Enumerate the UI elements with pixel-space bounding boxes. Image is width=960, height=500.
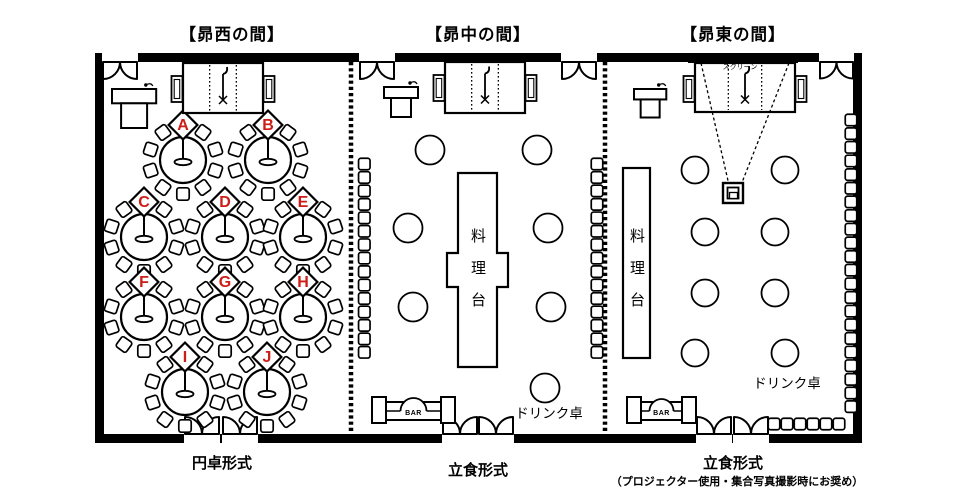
chair-icon <box>591 185 603 197</box>
chair-icon <box>210 395 226 411</box>
chair-icon <box>115 336 132 353</box>
chair-icon <box>219 345 231 357</box>
format-label-east: 立食形式 <box>653 452 813 473</box>
chair-icon <box>145 374 161 390</box>
table-letter-H: H <box>297 274 309 291</box>
chair-icon <box>185 240 201 256</box>
chair-icon <box>359 333 371 345</box>
chair-icon <box>591 239 603 251</box>
door-icon <box>561 51 597 79</box>
chair-icon <box>359 172 371 184</box>
chair-icon <box>359 252 371 264</box>
room-title-center: 【昴中の間】 <box>378 21 578 45</box>
chair-icon <box>156 411 173 428</box>
round-table-G: G <box>185 268 265 358</box>
door-icon <box>696 417 732 445</box>
chair-icon <box>194 179 211 196</box>
table-letter-B: B <box>262 117 274 134</box>
table-letter-C: C <box>138 194 150 211</box>
chair-icon <box>239 179 256 196</box>
chair-icon <box>845 360 857 372</box>
chair-icon <box>155 256 172 273</box>
door-icon <box>359 51 395 79</box>
chair-icon <box>250 219 266 235</box>
chair-icon <box>169 219 185 235</box>
chair-icon <box>104 219 120 235</box>
podium-icon <box>112 83 156 128</box>
chair-icon <box>210 374 226 390</box>
head-table <box>172 63 275 113</box>
chair-icon <box>359 199 371 211</box>
podium-icon <box>634 83 666 117</box>
chair-icon <box>591 199 603 211</box>
chair-icon <box>845 333 857 345</box>
room-title-west: 【昴西の間】 <box>132 21 332 45</box>
chair-icon <box>292 395 308 411</box>
chair-icon <box>591 226 603 238</box>
chair-icon <box>263 219 279 235</box>
chair-icon <box>591 172 603 184</box>
room-title-east: 【昴東の間】 <box>633 21 833 45</box>
wall-chair-row <box>591 158 603 358</box>
door-icon <box>819 51 854 79</box>
chair-icon <box>278 411 295 428</box>
chair-icon <box>262 188 274 200</box>
format-label-west: 円卓形式 <box>142 452 302 473</box>
chair-icon <box>768 418 780 430</box>
standing-table-icon <box>762 219 789 246</box>
standing-table-icon <box>523 136 552 165</box>
chair-icon <box>169 240 185 256</box>
chair-icon <box>328 240 344 256</box>
chair-icon <box>591 252 603 264</box>
chair-icon <box>359 158 371 170</box>
table-letter-J: J <box>263 349 272 366</box>
chair-icon <box>328 299 344 315</box>
chair-icon <box>845 210 857 222</box>
bar-label-east: BAR <box>647 410 676 417</box>
chair-icon <box>185 299 201 315</box>
chair-icon <box>591 306 603 318</box>
chair-icon <box>794 418 806 430</box>
standing-table-icon <box>772 157 799 184</box>
chair-icon <box>177 188 189 200</box>
chair-icon <box>228 163 244 179</box>
chair-icon <box>261 420 273 432</box>
chair-icon <box>169 320 185 336</box>
chair-icon <box>845 305 857 317</box>
round-table-B: B <box>228 111 308 201</box>
round-table-D: D <box>185 188 265 278</box>
wall-chair-row <box>359 158 371 358</box>
standing-table-icon <box>399 293 428 322</box>
chair-icon <box>250 299 266 315</box>
chair-icon <box>328 320 344 336</box>
chair-icon <box>845 196 857 208</box>
chair-icon <box>145 395 161 411</box>
chair-icon <box>359 293 371 305</box>
chair-icon <box>143 163 159 179</box>
chair-icon <box>845 292 857 304</box>
chair-icon <box>185 219 201 235</box>
chair-icon <box>845 264 857 276</box>
chair-icon <box>314 336 331 353</box>
chair-icon <box>274 336 291 353</box>
chair-icon <box>845 142 857 154</box>
standing-table-icon <box>416 136 445 165</box>
chair-icon <box>228 142 244 158</box>
round-table-E: E <box>263 188 343 278</box>
round-table-C: C <box>104 188 184 278</box>
chair-icon <box>154 179 171 196</box>
chair-icon <box>292 374 308 390</box>
chair-icon <box>169 299 185 315</box>
chair-icon <box>179 420 191 432</box>
chair-icon <box>833 418 845 430</box>
round-table-F: F <box>104 268 184 358</box>
chair-icon <box>208 163 224 179</box>
standing-table-icon <box>682 157 709 184</box>
wall-chair-row <box>768 418 845 430</box>
chair-icon <box>138 345 150 357</box>
chair-icon <box>274 256 291 273</box>
chair-icon <box>263 299 279 315</box>
chair-icon <box>293 163 309 179</box>
food-station-label-center: 料理台 <box>470 228 485 324</box>
chair-icon <box>155 336 172 353</box>
chair-icon <box>115 256 132 273</box>
chair-icon <box>591 266 603 278</box>
drink-table-icon <box>682 340 709 367</box>
round-table-A: A <box>143 111 223 201</box>
chair-icon <box>807 418 819 430</box>
food-station-label-east: 料理台 <box>629 228 644 324</box>
drink-table-label-center: ドリンク卓 <box>503 402 595 422</box>
bar-label-center: BAR <box>399 410 428 417</box>
chair-icon <box>359 266 371 278</box>
standing-table-icon <box>534 214 563 243</box>
chair-icon <box>845 387 857 399</box>
chair-icon <box>293 142 309 158</box>
chair-icon <box>591 293 603 305</box>
door-icon <box>733 417 769 445</box>
chair-icon <box>591 212 603 224</box>
chair-icon <box>845 374 857 386</box>
podium-icon <box>384 81 418 117</box>
chair-icon <box>196 336 213 353</box>
chair-icon <box>314 256 331 273</box>
drink-table-icon <box>531 374 560 403</box>
table-letter-G: G <box>219 274 231 291</box>
screen-label: スクリーン <box>712 62 768 72</box>
chair-icon <box>250 240 266 256</box>
chair-icon <box>359 212 371 224</box>
chair-icon <box>250 320 266 336</box>
chair-icon <box>328 219 344 235</box>
chair-icon <box>845 169 857 181</box>
table-letter-I: I <box>183 349 187 366</box>
chair-icon <box>227 374 243 390</box>
chair-icon <box>845 401 857 413</box>
chair-icon <box>359 306 371 318</box>
chair-icon <box>845 319 857 331</box>
chair-icon <box>820 418 832 430</box>
standing-table-icon <box>692 280 719 307</box>
chair-icon <box>359 347 371 359</box>
head-table <box>434 62 537 113</box>
chair-icon <box>208 142 224 158</box>
chair-icon <box>263 320 279 336</box>
chair-icon <box>845 251 857 263</box>
drink-table-label-east: ドリンク卓 <box>741 372 833 392</box>
chair-icon <box>359 279 371 291</box>
chair-icon <box>359 185 371 197</box>
standing-table-icon <box>762 280 789 307</box>
chair-icon <box>845 237 857 249</box>
chair-icon <box>359 226 371 238</box>
table-letter-F: F <box>139 274 149 291</box>
chair-icon <box>781 418 793 430</box>
chair-icon <box>591 347 603 359</box>
chair-icon <box>104 240 120 256</box>
chair-icon <box>591 333 603 345</box>
chair-icon <box>236 256 253 273</box>
standing-table-icon <box>772 340 799 367</box>
door-icon <box>102 51 138 79</box>
table-letter-A: A <box>177 117 189 134</box>
chair-icon <box>297 345 309 357</box>
chair-icon <box>143 142 159 158</box>
chair-icon <box>185 320 201 336</box>
chair-icon <box>845 128 857 140</box>
chair-icon <box>104 320 120 336</box>
table-letter-E: E <box>298 194 309 211</box>
standing-table-icon <box>394 214 423 243</box>
standing-table-icon <box>692 219 719 246</box>
chair-icon <box>591 320 603 332</box>
format-note-east: （プロジェクター使用・集合写真撮影時にお奨め） <box>577 473 897 489</box>
chair-icon <box>104 299 120 315</box>
chair-icon <box>263 240 279 256</box>
chair-icon <box>845 278 857 290</box>
chair-icon <box>359 320 371 332</box>
table-letter-D: D <box>219 194 231 211</box>
chair-icon <box>227 395 243 411</box>
chair-icon <box>845 183 857 195</box>
chair-icon <box>845 114 857 126</box>
chair-icon <box>845 346 857 358</box>
banquet-floor-plan: ABCDEFGHIJ 【昴西の間】 【昴中の間】 【昴東の間】 円卓形式 立食形… <box>0 0 960 500</box>
chair-icon <box>845 223 857 235</box>
round-table-J: J <box>227 343 307 433</box>
chair-icon <box>359 239 371 251</box>
chair-icon <box>196 256 213 273</box>
standing-table-icon <box>537 293 566 322</box>
chair-icon <box>591 158 603 170</box>
format-label-center: 立食形式 <box>398 459 558 480</box>
chair-icon <box>591 279 603 291</box>
chair-icon <box>279 179 296 196</box>
chair-icon <box>236 336 253 353</box>
chair-icon <box>845 155 857 167</box>
round-table-H: H <box>263 268 343 358</box>
